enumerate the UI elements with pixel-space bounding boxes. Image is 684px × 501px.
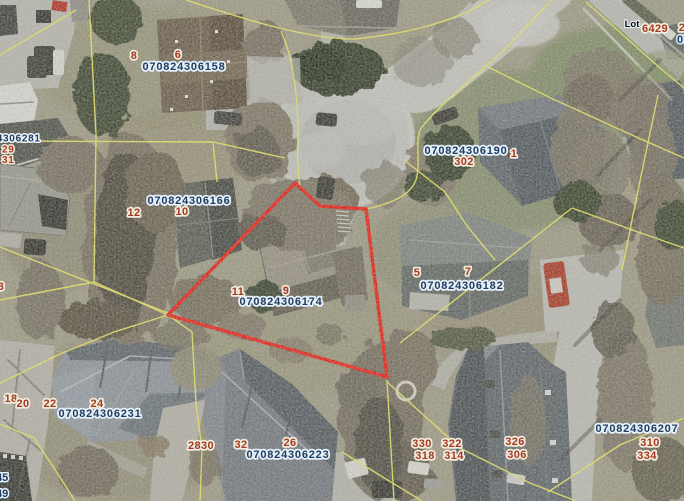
svg-text:1: 1 — [511, 148, 518, 160]
svg-text:26: 26 — [283, 437, 296, 449]
svg-text:070824306182: 070824306182 — [420, 280, 503, 292]
svg-text:29: 29 — [2, 145, 15, 156]
svg-text:070824306174: 070824306174 — [239, 296, 322, 308]
svg-text:2: 2 — [679, 22, 684, 34]
svg-text:3: 3 — [0, 281, 4, 293]
svg-text:22: 22 — [43, 398, 56, 410]
svg-text:070824306166: 070824306166 — [147, 195, 230, 207]
svg-text:49: 49 — [0, 488, 8, 500]
svg-text:12: 12 — [127, 207, 140, 219]
svg-text:070824306207: 070824306207 — [595, 423, 678, 435]
svg-text:302: 302 — [454, 156, 474, 168]
svg-text:330: 330 — [412, 438, 432, 450]
svg-text:326: 326 — [505, 436, 525, 448]
svg-text:20: 20 — [16, 398, 29, 410]
svg-text:9: 9 — [283, 285, 290, 297]
svg-text:6429: 6429 — [642, 23, 668, 35]
svg-text:32: 32 — [234, 439, 247, 451]
svg-text:11: 11 — [232, 286, 244, 298]
svg-text:314: 314 — [444, 450, 464, 462]
svg-text:334: 334 — [637, 450, 657, 462]
svg-text:7: 7 — [465, 266, 472, 278]
svg-text:070824306223: 070824306223 — [246, 449, 329, 461]
svg-text:070824306158: 070824306158 — [142, 61, 225, 73]
svg-text:2830: 2830 — [188, 440, 214, 452]
svg-text:31: 31 — [2, 155, 15, 166]
svg-text:24: 24 — [90, 398, 104, 410]
svg-text:306: 306 — [507, 449, 527, 461]
svg-text:5: 5 — [414, 267, 421, 279]
svg-text:45: 45 — [0, 472, 8, 484]
svg-text:310: 310 — [640, 437, 660, 449]
svg-text:10: 10 — [175, 206, 188, 218]
svg-text:Lot: Lot — [625, 19, 641, 30]
svg-text:07: 07 — [677, 34, 684, 46]
svg-text:0824306281: 0824306281 — [0, 134, 41, 145]
svg-text:6: 6 — [175, 49, 182, 61]
svg-text:322: 322 — [442, 438, 462, 450]
svg-text:318: 318 — [415, 450, 435, 462]
svg-text:8: 8 — [131, 50, 138, 62]
